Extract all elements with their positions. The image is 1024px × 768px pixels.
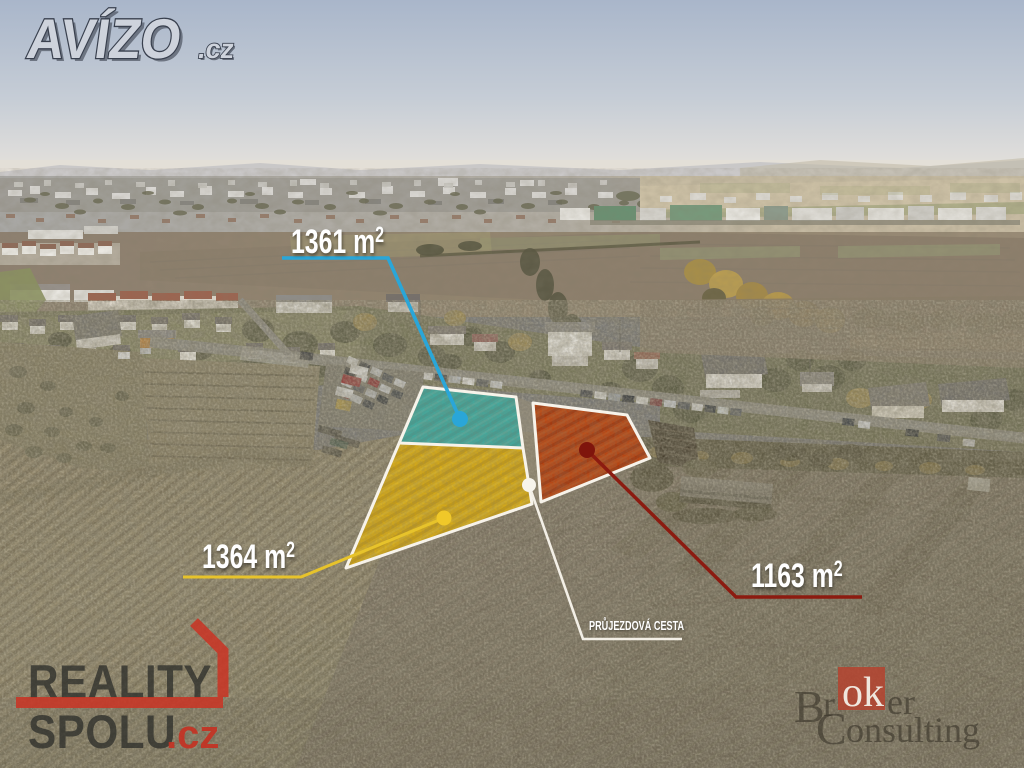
svg-text:AVÍZO: AVÍZO <box>23 8 185 70</box>
svg-text:1163 m2: 1163 m2 <box>751 557 843 595</box>
svg-text:1361 m2: 1361 m2 <box>291 223 384 261</box>
svg-text:PRŮJEZDOVÁ CESTA: PRŮJEZDOVÁ CESTA <box>589 617 684 633</box>
svg-text:1364 m2: 1364 m2 <box>202 538 295 576</box>
svg-text:.cz: .cz <box>196 33 236 64</box>
svg-text:onsulting: onsulting <box>846 710 980 750</box>
svg-text:SPOLU: SPOLU <box>28 707 176 759</box>
svg-text:C: C <box>816 703 847 754</box>
svg-text:.cz: .cz <box>166 713 219 757</box>
